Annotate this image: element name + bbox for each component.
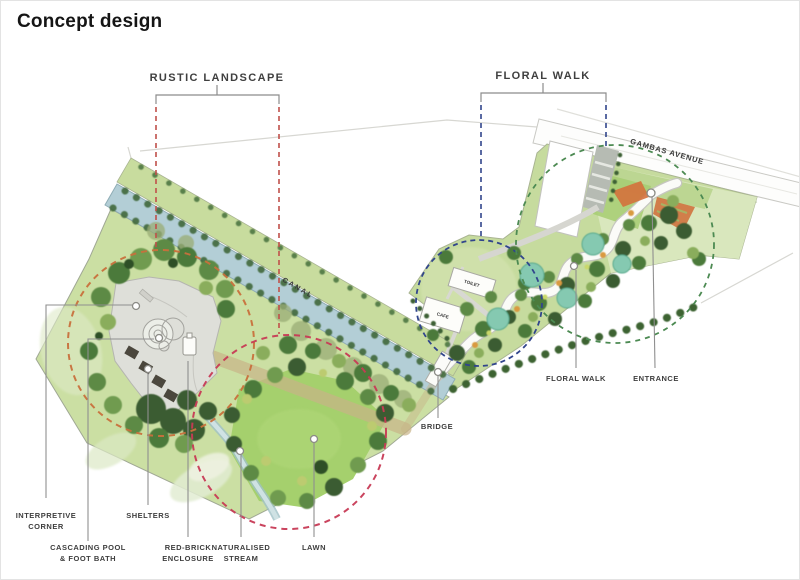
svg-text:BRIDGE: BRIDGE: [421, 422, 453, 431]
svg-text:RED-BRICK: RED-BRICK: [165, 543, 212, 552]
zone-header-rustic: RUSTIC LANDSCAPE: [150, 72, 285, 84]
callout-interpretive-corner: INTERPRETIVE CORNER: [16, 511, 77, 531]
callout-red-brick-enclosure: RED-BRICK ENCLOSURE: [162, 543, 214, 563]
svg-text:CORNER: CORNER: [28, 522, 64, 531]
svg-text:LAWN: LAWN: [302, 543, 326, 552]
svg-text:INTERPRETIVE: INTERPRETIVE: [16, 511, 77, 520]
svg-text:ENTRANCE: ENTRANCE: [633, 374, 679, 383]
callout-shelters: SHELTERS: [126, 511, 169, 520]
svg-text:SHELTERS: SHELTERS: [126, 511, 169, 520]
callout-bridge: BRIDGE: [421, 422, 453, 431]
callout-cascading-pool: CASCADING POOL & FOOT BATH: [50, 543, 126, 563]
concept-map: RUSTIC LANDSCAPE FLORAL WALK CANAL GAMBA…: [1, 1, 800, 580]
callout-naturalised-stream: NATURALISED STREAM: [212, 543, 271, 563]
svg-text:NATURALISED: NATURALISED: [212, 543, 271, 552]
callout-lawn: LAWN: [302, 543, 326, 552]
zone-header-floral: FLORAL WALK: [495, 70, 590, 82]
concept-design-slide: Concept design: [0, 0, 800, 580]
svg-text:CASCADING POOL: CASCADING POOL: [50, 543, 126, 552]
callout-floral-walk: FLORAL WALK: [546, 374, 606, 383]
svg-text:ENCLOSURE: ENCLOSURE: [162, 554, 214, 563]
svg-text:STREAM: STREAM: [224, 554, 259, 563]
callout-entrance: ENTRANCE: [633, 374, 679, 383]
svg-text:& FOOT BATH: & FOOT BATH: [60, 554, 116, 563]
svg-text:FLORAL WALK: FLORAL WALK: [546, 374, 606, 383]
